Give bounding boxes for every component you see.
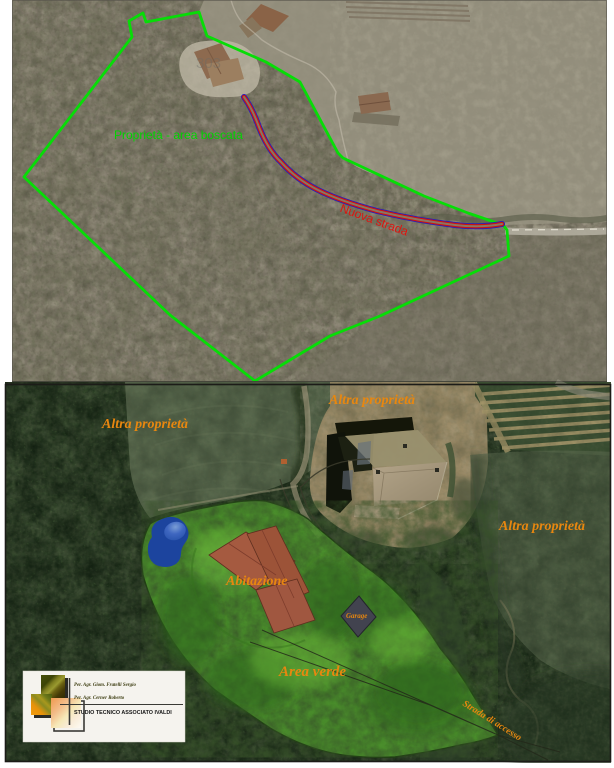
svg-text:Garage: Garage (346, 612, 367, 620)
svg-text:Altra proprietà: Altra proprietà (498, 519, 585, 534)
svg-text:Proprietà - area boscata: Proprietà - area boscata (114, 128, 243, 142)
svg-text:303: 303 (196, 55, 221, 72)
svg-text:Per. Agr. Giom. Fratelli Sergi: Per. Agr. Giom. Fratelli Sergio (74, 683, 136, 688)
svg-text:Altra proprietà: Altra proprietà (101, 417, 188, 432)
svg-text:Area verde: Area verde (278, 664, 346, 680)
svg-text:Abitazione: Abitazione (225, 574, 287, 589)
svg-text:Per. Agr. Cerner Roberto: Per. Agr. Cerner Roberto (74, 696, 125, 701)
svg-text:Altra proprietà: Altra proprietà (328, 393, 415, 408)
svg-text:STUDIO TECNICO ASSOCIATO IVALD: STUDIO TECNICO ASSOCIATO IVALDI (74, 710, 172, 716)
